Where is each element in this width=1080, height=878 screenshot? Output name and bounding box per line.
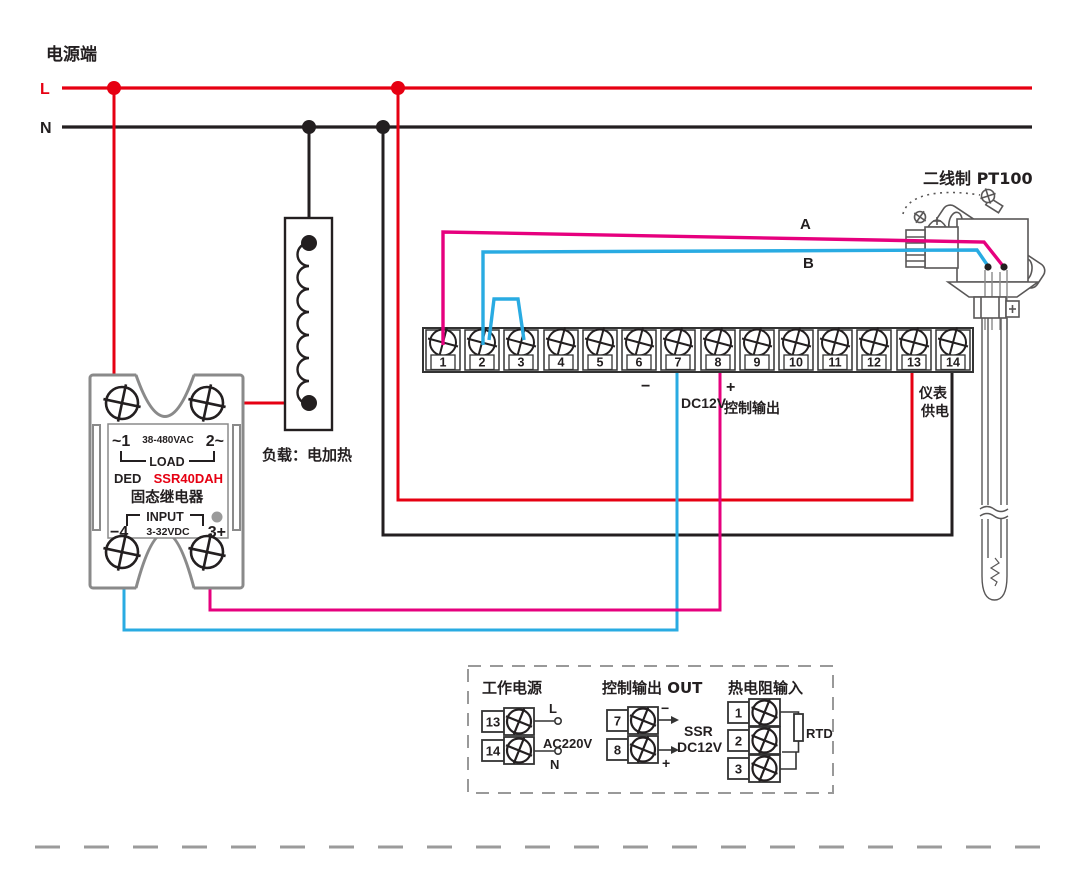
terminal-label: 9 bbox=[754, 356, 761, 370]
detail-ssr-label: SSR bbox=[684, 723, 713, 739]
control-output-section: 控制输出 OUT 7 − 8 + SSR DC12V bbox=[602, 679, 723, 771]
ssr-input-right: 3+ bbox=[208, 524, 226, 541]
sensor-neck bbox=[948, 282, 1038, 297]
heater-load: 负载：电加热 bbox=[262, 218, 352, 464]
wiring-diagram: 电源端 L N 负载：电加热 bbox=[0, 0, 1080, 878]
sensor-flange bbox=[925, 227, 958, 268]
l-contact-circle bbox=[555, 718, 561, 724]
terminal-label: 1 bbox=[440, 356, 447, 370]
wire-a-label: A bbox=[800, 216, 811, 233]
rtd-input-title: 热电阻输入 bbox=[728, 679, 803, 697]
power-rails: 电源端 L N bbox=[40, 44, 1032, 137]
terminal-label: 11 bbox=[828, 356, 841, 370]
l-to-terminal13-wire bbox=[398, 88, 912, 500]
l-label: L bbox=[40, 81, 50, 98]
probe-break-bottom bbox=[980, 514, 1008, 519]
dc-minus-label: − bbox=[641, 378, 650, 395]
probe-tip bbox=[982, 576, 1007, 600]
detail-out-minus: − bbox=[661, 700, 669, 716]
wire-b-tip bbox=[984, 263, 991, 270]
detail-l-label: L bbox=[549, 701, 557, 716]
ssr-brand: DED bbox=[114, 471, 141, 486]
n-label: N bbox=[40, 120, 52, 137]
terminal-label: 5 bbox=[597, 356, 604, 370]
l-junction-1 bbox=[107, 81, 121, 95]
detail-n-label: N bbox=[550, 757, 559, 772]
detail-t8: 8 bbox=[614, 743, 621, 758]
probe-element-zigzag bbox=[991, 558, 999, 586]
n-junction-2 bbox=[376, 120, 390, 134]
load-bottom-junction bbox=[301, 395, 317, 411]
rtd-resistor bbox=[794, 714, 803, 741]
terminal-label: 14 bbox=[946, 356, 960, 370]
sensor-right-screw bbox=[978, 186, 1003, 213]
probe-break-top bbox=[980, 507, 1008, 512]
detail-t7: 7 bbox=[614, 714, 621, 729]
wire-b-label: B bbox=[803, 255, 814, 272]
n-contact-circle bbox=[555, 748, 561, 754]
rtd-wiring bbox=[780, 712, 803, 769]
load-top-junction bbox=[301, 235, 317, 251]
detail-rtd-t1: 1 bbox=[735, 706, 742, 721]
control-output-title: 控制输出 OUT bbox=[602, 679, 703, 697]
ssr-relay: ~1 38-480VAC 2~ LOAD DED SSR40DAH 固态继电器 … bbox=[90, 373, 243, 590]
terminal-strip: 1 2 3 4 5 6 7 8 9 10 11 12 13 14 bbox=[423, 324, 973, 372]
control-output-label: 控制输出 bbox=[724, 400, 780, 417]
sensor-thread-nut bbox=[906, 230, 925, 267]
ssr-load-word: LOAD bbox=[149, 455, 184, 469]
meter-supply-label-2: 供电 bbox=[920, 403, 949, 420]
rtd-input-section: 热电阻输入 1 2 3 RTD bbox=[728, 679, 833, 787]
ssr-name-cn: 固态继电器 bbox=[131, 488, 204, 506]
ssr-input-word: INPUT bbox=[146, 510, 184, 524]
ssr-input-left: −4 bbox=[110, 524, 128, 541]
detail-out-plus: + bbox=[662, 755, 670, 771]
terminal-label: 4 bbox=[558, 356, 565, 370]
detail-ac220v-label: AC220V bbox=[543, 736, 592, 751]
ssr-right-slot bbox=[233, 425, 240, 530]
ssr-input-mid: 3-32VDC bbox=[146, 526, 190, 538]
ssr-model: SSR40DAH bbox=[154, 471, 223, 486]
terminal-label: 3 bbox=[518, 356, 525, 370]
detail-rtd-t2: 2 bbox=[735, 734, 742, 749]
detail-dc12v-label: DC12V bbox=[677, 739, 723, 755]
detail-t13: 13 bbox=[486, 715, 500, 730]
terminal-label: 2 bbox=[479, 356, 486, 370]
sensor-probe bbox=[980, 318, 1008, 600]
diagram-canvas: 电源端 L N 负载：电加热 bbox=[0, 0, 1080, 878]
ssr-left-slot bbox=[93, 425, 100, 530]
detail-rtd-t3: 3 bbox=[735, 762, 742, 777]
ssr-rating-right: 2~ bbox=[206, 433, 224, 450]
sensor-clamp-box bbox=[1006, 301, 1019, 317]
sensor-left-screw bbox=[910, 207, 929, 226]
terminal-detail-box: 工作电源 13 L AC220V 14 N 控制输出 OUT 7 bbox=[468, 666, 833, 793]
rtd-label: RTD bbox=[806, 726, 833, 741]
sensor-collar bbox=[974, 297, 1006, 318]
n-junction-1 bbox=[302, 120, 316, 134]
wire-a-tip bbox=[1000, 263, 1007, 270]
detail-t14: 14 bbox=[486, 744, 501, 759]
working-power-title: 工作电源 bbox=[482, 679, 542, 697]
power-title: 电源端 bbox=[46, 44, 97, 65]
load-caption: 负载：电加热 bbox=[262, 446, 352, 464]
terminal-label: 7 bbox=[675, 356, 682, 370]
meter-supply-label-1: 仪表 bbox=[918, 385, 948, 402]
terminal-label: 13 bbox=[907, 356, 921, 370]
out-minus-arrow bbox=[671, 716, 679, 724]
terminal-label: 8 bbox=[715, 356, 722, 370]
terminal-label: 6 bbox=[636, 356, 643, 370]
terminal-label: 10 bbox=[789, 356, 803, 370]
l-junction-2 bbox=[391, 81, 405, 95]
working-power-section: 工作电源 13 L AC220V 14 N bbox=[482, 679, 592, 772]
control-plus-label: + bbox=[726, 379, 735, 396]
ssr-led-dot bbox=[212, 512, 223, 523]
ssr-rating-mid: 38-480VAC bbox=[142, 435, 194, 446]
sensor-title: 二线制 PT100 bbox=[923, 169, 1033, 188]
dc12v-label: DC12V bbox=[681, 395, 727, 411]
terminal-label: 12 bbox=[867, 356, 881, 370]
sensor-body bbox=[906, 217, 1038, 330]
ssr-rating-left: ~1 bbox=[112, 433, 130, 450]
